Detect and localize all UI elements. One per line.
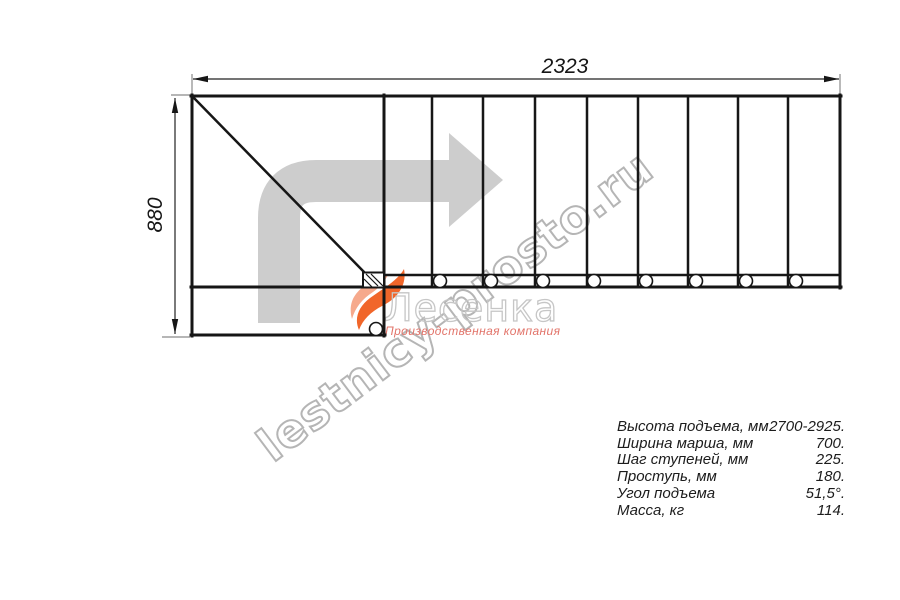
spec-value: 225. — [816, 452, 845, 469]
spec-value: 180. — [816, 469, 845, 486]
spec-label: Масса, кг — [617, 503, 684, 520]
dimension-width-label: 2323 — [520, 55, 610, 79]
spec-row: Масса, кг 114. — [617, 503, 845, 520]
landing-diagonal — [193, 97, 365, 273]
spec-row: Высота подъема, мм 2700-2925. — [617, 419, 845, 436]
dimension-height-label: 880 — [142, 175, 170, 255]
spec-label: Проступь, мм — [617, 469, 717, 486]
stair-drawing-page: lestnicy-prosto.ru Лесенка Производствен… — [0, 0, 900, 600]
specs-table: Высота подъема, мм 2700-2925. Ширина мар… — [617, 419, 845, 519]
connector-hatch — [363, 273, 384, 288]
spec-value: 2700-2925. — [769, 419, 845, 436]
spec-label: Высота подъема, мм — [617, 419, 769, 436]
spec-row: Ширина марша, мм 700. — [617, 436, 845, 453]
stair-outline — [191, 95, 841, 336]
spec-label: Шаг ступеней, мм — [617, 452, 748, 469]
spec-value: 114. — [817, 503, 845, 520]
spec-row: Угол подъема 51,5°. — [617, 486, 845, 503]
spec-row: Шаг ступеней, мм 225. — [617, 452, 845, 469]
spec-value: 700. — [816, 436, 845, 453]
spec-value: 51,5°. — [806, 486, 845, 503]
spec-label: Ширина марша, мм — [617, 436, 753, 453]
spec-label: Угол подъема — [617, 486, 715, 503]
spec-row: Проступь, мм 180. — [617, 469, 845, 486]
tread-lines — [432, 96, 788, 287]
